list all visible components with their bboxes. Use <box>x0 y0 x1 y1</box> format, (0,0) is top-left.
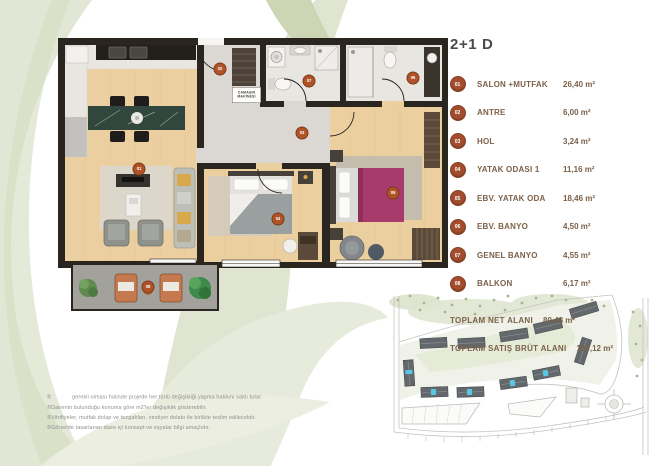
plan-marker-06: 06 <box>407 72 420 85</box>
room-label: ANTRE <box>477 108 506 117</box>
plan-marker-01: 01 <box>133 163 146 176</box>
room-area: 6,17 m² <box>563 279 591 288</box>
disclaimer-line: ®Vitrifiyeler, mutfak dolap ve tezgahlar… <box>47 412 359 422</box>
room-label: EBV. BANYO <box>477 222 528 231</box>
master-bedroom <box>322 107 442 262</box>
plan-marker-08: 08 <box>142 281 155 294</box>
room-area: 6,00 m² <box>563 108 591 117</box>
room-label: GENEL BANYO <box>477 251 538 260</box>
legend-row: 01 SALON +MUTFAK 26,40 m² <box>450 70 658 99</box>
unit-title: 2+1 D <box>450 36 658 53</box>
disclaimer-line: ®Görselde tasarlanan daire içi konsept v… <box>47 423 359 433</box>
room-label: YATAK ODASI 1 <box>477 165 539 174</box>
total-net-label: TOPLAM NET ALANI <box>450 316 533 325</box>
legend-row: 05 EBV. YATAK ODA 18,46 m² <box>450 184 658 213</box>
legend-row: 08 BALKON 6,17 m² <box>450 270 658 299</box>
room-area: 3,24 m² <box>563 137 591 146</box>
legend-totals: TOPLAM NET ALANI 80,48 m² TOPLAM SATIŞ B… <box>450 306 658 362</box>
legend-row: 04 YATAK ODASI 1 11,16 m² <box>450 156 658 185</box>
legend-row: 02 ANTRE 6,00 m² <box>450 99 658 128</box>
room-number-badge: 02 <box>450 105 466 121</box>
disclaimer-line: ® gerekli olması halinde projede her tür… <box>47 392 359 402</box>
legend-row: 06 EBV. BANYO 4,50 m² <box>450 213 658 242</box>
plan-marker-02: 02 <box>214 63 227 76</box>
room-number-badge: 06 <box>450 219 466 235</box>
room-area: 11,16 m² <box>563 165 595 174</box>
legend-row: 07 GENEL BANYO 4,55 m² <box>450 241 658 270</box>
legend-row: 03 HOL 3,24 m² <box>450 127 658 156</box>
disclaimer-line: ®Dairenin bulunduğu konuma göre m2'ler d… <box>47 402 359 412</box>
room-label: BALKON <box>477 279 512 288</box>
brochure-page: ÇAMAŞIR MAKİNESİ 01 02 03 04 05 06 07 08… <box>0 0 660 466</box>
total-gross-row: TOPLAM SATIŞ BRÜT ALANI 120,12 m² <box>450 334 658 362</box>
salon-kitchen <box>65 45 197 261</box>
total-gross-label: TOPLAM SATIŞ BRÜT ALANI <box>450 344 567 353</box>
bedroom-1 <box>204 163 322 262</box>
disclaimer: ® gerekli olması halinde projede her tür… <box>47 392 359 433</box>
total-gross-value: 120,12 m² <box>577 344 613 353</box>
room-label: SALON +MUTFAK <box>477 80 548 89</box>
total-net-row: TOPLAM NET ALANI 80,48 m² <box>450 306 658 334</box>
room-number-badge: 01 <box>450 76 466 92</box>
room-area: 4,55 m² <box>563 251 591 260</box>
room-number-badge: 08 <box>450 276 466 292</box>
room-number-badge: 03 <box>450 133 466 149</box>
plan-marker-04: 04 <box>272 213 285 226</box>
room-number-badge: 07 <box>450 247 466 263</box>
plan-marker-07: 07 <box>303 75 316 88</box>
total-net-value: 80,48 m² <box>543 316 575 325</box>
room-number-badge: 05 <box>450 190 466 206</box>
legend-rows: 01 SALON +MUTFAK 26,40 m² 02 ANTRE 6,00 … <box>450 70 658 298</box>
ebeveyn-banyo <box>346 45 442 107</box>
room-legend: 2+1 D 01 SALON +MUTFAK 26,40 m² 02 ANTRE… <box>450 36 658 362</box>
room-label: EBV. YATAK ODA <box>477 194 545 203</box>
plan-marker-03: 03 <box>296 127 309 140</box>
room-number-badge: 04 <box>450 162 466 178</box>
room-area: 18,46 m² <box>563 194 595 203</box>
room-area: 4,50 m² <box>563 222 591 231</box>
plan-marker-05: 05 <box>387 187 400 200</box>
room-area: 26,40 m² <box>563 80 595 89</box>
washing-machine-label: ÇAMAŞIR MAKİNESİ <box>232 87 261 103</box>
room-label: HOL <box>477 137 495 146</box>
